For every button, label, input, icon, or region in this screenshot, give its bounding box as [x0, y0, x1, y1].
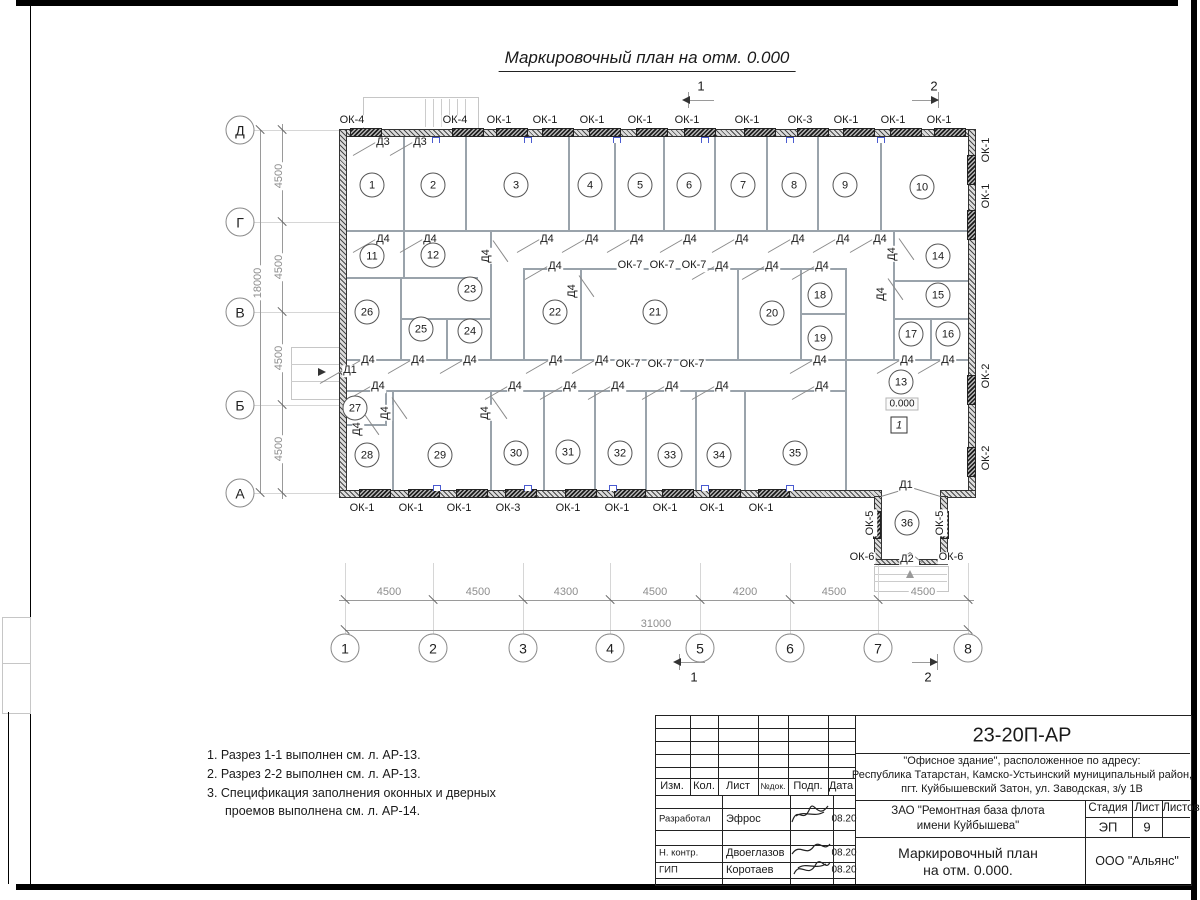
door-label: Д4 [462, 355, 478, 367]
window-label: ОК-7 [679, 359, 706, 371]
note-line: 3. Спецификация заполнения оконных и две… [207, 784, 529, 822]
room-number: 3 [504, 173, 529, 198]
partition-wall [845, 359, 847, 491]
window [351, 129, 381, 136]
room-number: 27 [343, 396, 368, 421]
room-number: 28 [355, 443, 380, 468]
role-label: Н. контр. [659, 848, 698, 859]
sheet-number: 9 [1143, 820, 1150, 835]
sheet-label: Лист [1135, 802, 1160, 814]
vent-mark [701, 137, 709, 143]
window [637, 129, 667, 136]
dimension-value: 4500 [273, 344, 285, 372]
partition-wall [880, 136, 882, 230]
partition-wall [845, 268, 847, 359]
room-number: 20 [760, 301, 785, 326]
door-label: Д4 [548, 355, 564, 367]
col-data: Дата [829, 780, 853, 792]
window-label: ОК-4 [339, 115, 366, 127]
partition-wall [465, 136, 467, 230]
room-number: 17 [899, 322, 924, 347]
door-label: Д4 [899, 355, 915, 367]
address-line: пгт. Куйбышевский Затон, ул. Заводская, … [901, 783, 1143, 795]
door-label: Д4 [562, 381, 578, 393]
dimension-value: 4500 [273, 162, 285, 190]
window-label: ОК-1 [833, 115, 860, 127]
floor-mark: 1 [891, 417, 908, 434]
partition-wall [737, 268, 739, 359]
partition-wall [744, 390, 746, 491]
partition-wall [663, 136, 665, 230]
drawing-sheet: Маркировочный план на отм. 0.000 ОК-4ОК-… [0, 0, 1200, 900]
door-label: Д4 [610, 381, 626, 393]
window-label: ОК-1 [926, 115, 953, 127]
level-mark: 0.000 [885, 398, 918, 411]
door-label: Д4 [507, 381, 523, 393]
room-number: 23 [458, 277, 483, 302]
window-label: ОК-7 [615, 359, 642, 371]
window-label: ОК-7 [617, 260, 644, 272]
room-number: 6 [677, 173, 702, 198]
window [685, 129, 715, 136]
porch-step [874, 581, 947, 582]
section-mark: 1 [696, 79, 705, 94]
vent-mark [432, 137, 440, 143]
room-number: 13 [889, 370, 914, 395]
partition-wall [403, 136, 405, 230]
door-swing [492, 397, 508, 419]
door-label: Д4 [539, 234, 555, 246]
room-number: 10 [910, 175, 935, 200]
window-label: ОК-1 [652, 503, 679, 515]
partition-wall [446, 318, 448, 360]
window-label: ОК-5 [865, 510, 877, 537]
porch-step [425, 99, 426, 127]
dimension-value: 4500 [273, 253, 285, 281]
door-label: Д4 [352, 421, 364, 437]
room-number: 34 [707, 443, 732, 468]
door-label: Д4 [567, 283, 579, 299]
window [710, 490, 740, 497]
room-number: 21 [643, 300, 668, 325]
axis-bubble: 7 [864, 634, 893, 663]
room-number: 26 [355, 300, 380, 325]
axis-bubble: Б [226, 391, 255, 420]
door-swing [911, 487, 941, 497]
section-arrow-line [679, 662, 705, 663]
vent-mark [524, 485, 532, 491]
door-label: Д4 [360, 355, 376, 367]
window [798, 129, 828, 136]
extension-line [252, 130, 344, 131]
axis-bubble: Д [226, 116, 255, 145]
room-number: 35 [783, 441, 808, 466]
window-label: ОК-1 [880, 115, 907, 127]
signature [788, 800, 832, 828]
company-name: ООО "Альянс" [1095, 854, 1179, 868]
door-label: Д4 [410, 355, 426, 367]
exterior-wall [969, 130, 975, 497]
room-number: 8 [782, 173, 807, 198]
vent-mark [786, 137, 794, 143]
dimension-total: 31000 [639, 618, 674, 630]
sheet-title-line: на отм. 0.000. [923, 862, 1013, 878]
role-label: ГИП [659, 865, 678, 876]
partition-wall [893, 280, 969, 282]
room-number: 4 [578, 173, 603, 198]
porch-arrow [906, 570, 914, 578]
axis-bubble: А [226, 479, 255, 508]
partition-wall [392, 390, 394, 491]
door-swing [899, 238, 915, 260]
window-label: ОК-7 [649, 260, 676, 272]
door-label: Д4 [814, 381, 830, 393]
door-label: Д4 [682, 234, 698, 246]
window [457, 490, 487, 497]
room-number: 19 [808, 326, 833, 351]
axis-bubble: В [226, 298, 255, 327]
door-label: Д4 [714, 261, 730, 273]
door-label: Д2 [899, 554, 915, 566]
partition-wall [580, 268, 582, 359]
window [543, 129, 573, 136]
dimension-value: 4500 [464, 586, 492, 598]
section-arrow-head [673, 658, 681, 666]
window-label: ОК-1 [349, 503, 376, 515]
dimension-value: 4500 [909, 586, 937, 598]
window [453, 129, 483, 136]
axis-bubble: 4 [596, 634, 625, 663]
room-number: 22 [543, 300, 568, 325]
notes-block: 1. Разрез 1-1 выполнен см. л. АР-13. 2. … [207, 746, 529, 821]
window-label: ОК-4 [442, 115, 469, 127]
date-value: 08.20 [831, 814, 856, 825]
date-value: 08.20 [831, 848, 856, 859]
axis-bubble: 8 [954, 634, 983, 663]
room-number: 25 [409, 317, 434, 342]
partition-wall [346, 277, 478, 279]
window [968, 376, 975, 404]
dimension-total: 18000 [252, 266, 264, 301]
extension-line [252, 405, 344, 406]
dimension-value: 4300 [552, 586, 580, 598]
col-list: Лист [726, 780, 750, 792]
door-label: Д4 [764, 261, 780, 273]
partition-wall [714, 136, 716, 230]
window [968, 448, 975, 476]
window [759, 490, 789, 497]
porch-step [291, 381, 340, 382]
dimension-value: 4500 [375, 586, 403, 598]
door-label: Д4 [790, 234, 806, 246]
porch-step [291, 364, 340, 365]
room-number: 2 [421, 173, 446, 198]
window-label: ОК-1 [555, 503, 582, 515]
stage-value: ЭП [1099, 820, 1118, 835]
door-label: Д4 [629, 234, 645, 246]
window [844, 129, 874, 136]
window-label: ОК-3 [495, 503, 522, 515]
door-label: Д4 [594, 355, 610, 367]
partition-wall [817, 136, 819, 230]
window [566, 490, 596, 497]
extension-line [252, 222, 344, 223]
window-label: ОК-1 [981, 137, 993, 164]
room-number: 36 [895, 511, 920, 536]
window-label: ОК-7 [681, 260, 708, 272]
door-label: Д4 [887, 246, 899, 262]
extension-line [252, 312, 344, 313]
window-label: ОК-2 [981, 363, 993, 390]
room-number: 30 [504, 441, 529, 466]
dimension-value: 4500 [273, 435, 285, 463]
room-number: 29 [428, 443, 453, 468]
window-label: ОК-5 [935, 510, 947, 537]
door-label: Д4 [480, 405, 492, 421]
door-label: Д4 [547, 261, 563, 273]
window-label: ОК-1 [398, 503, 425, 515]
col-izm: Изм. [660, 780, 684, 792]
partition-wall [594, 390, 596, 491]
door-label: Д3 [375, 137, 391, 149]
signature [788, 840, 832, 882]
window-label: ОК-6 [938, 552, 965, 564]
door-label: Д3 [412, 137, 428, 149]
axis-bubble: 2 [419, 634, 448, 663]
window-label: ОК-7 [647, 359, 674, 371]
window [745, 129, 775, 136]
window-label: ОК-1 [748, 503, 775, 515]
room-number: 14 [926, 244, 951, 269]
person-name: Коротаев [726, 864, 774, 876]
axis-bubble: 5 [686, 634, 715, 663]
window [590, 129, 620, 136]
window-label: ОК-1 [734, 115, 761, 127]
note-line: 1. Разрез 1-1 выполнен см. л. АР-13. [207, 746, 529, 765]
vent-mark [701, 485, 709, 491]
vent-mark [786, 485, 794, 491]
window-label: ОК-1 [627, 115, 654, 127]
section-arrow-head [930, 658, 938, 666]
partition-wall [766, 136, 768, 230]
window-label: ОК-2 [981, 445, 993, 472]
room-number: 9 [833, 173, 858, 198]
door-label: Д1 [898, 480, 914, 492]
address-line: "Офисное здание", расположенное по адрес… [903, 755, 1140, 767]
partition-wall [645, 390, 647, 491]
room-number: 5 [628, 173, 653, 198]
partition-wall [523, 268, 525, 359]
room-number: 11 [360, 244, 385, 269]
partition-wall [695, 390, 697, 491]
door-swing [493, 240, 509, 262]
section-mark: 2 [923, 670, 932, 685]
door-label: Д4 [584, 234, 600, 246]
stage-label: Стадия [1088, 802, 1127, 814]
section-arrow-head [682, 96, 690, 104]
porch-step [433, 99, 434, 127]
window-label: ОК-6 [849, 552, 876, 564]
window [615, 490, 645, 497]
window [663, 490, 693, 497]
dimension-value: 4200 [731, 586, 759, 598]
door-label: Д4 [876, 286, 888, 302]
dimension-value: 4500 [641, 586, 669, 598]
window-label: ОК-1 [579, 115, 606, 127]
col-ndok: №док. [761, 781, 786, 791]
window-label: ОК-1 [532, 115, 559, 127]
window [891, 129, 921, 136]
extension-line [252, 493, 344, 494]
sheet-title-line: Маркировочный план [898, 845, 1038, 861]
door-label: Д4 [481, 248, 493, 264]
partition-wall [403, 230, 405, 277]
door-label: Д4 [814, 261, 830, 273]
partition-wall [568, 136, 570, 230]
window [506, 490, 536, 497]
room-number: 7 [731, 173, 756, 198]
window-label: ОК-3 [787, 115, 814, 127]
room-number: 12 [421, 243, 446, 268]
window [968, 211, 975, 239]
door-label: Д4 [940, 355, 956, 367]
room-number: 15 [926, 283, 951, 308]
window [968, 156, 975, 184]
sheets-label: Листов [1162, 802, 1199, 814]
address-line: Республика Татарстан, Камско-Устьинский … [852, 769, 1192, 781]
door-label: Д4 [714, 381, 730, 393]
window-label: ОК-1 [981, 183, 993, 210]
door-label: Д4 [664, 381, 680, 393]
door-label: Д4 [734, 234, 750, 246]
doc-code: 23-20П-АР [973, 725, 1072, 748]
vent-mark [613, 137, 621, 143]
axis-bubble: 1 [331, 634, 360, 663]
client-line: ЗАО "Ремонтная база флота [891, 805, 1044, 817]
section-mark: 1 [689, 670, 698, 685]
col-podp: Подп. [793, 780, 822, 792]
door-label: Д4 [872, 234, 888, 246]
person-name: Двоеглазов [726, 847, 784, 859]
vent-mark [524, 137, 532, 143]
room-number: 1 [360, 173, 385, 198]
door-label: Д1 [342, 365, 358, 377]
section-arrow-head [931, 96, 939, 104]
porch-arrow [318, 368, 326, 376]
window [935, 129, 965, 136]
dim-line [260, 130, 261, 493]
partition-wall [346, 230, 969, 232]
partition-wall [800, 313, 845, 315]
room-number: 33 [658, 443, 683, 468]
room-number: 32 [608, 441, 633, 466]
date-value: 08.20 [831, 865, 856, 876]
axis-bubble: 6 [776, 634, 805, 663]
window-label: ОК-1 [674, 115, 701, 127]
vent-mark [433, 485, 441, 491]
door-label: Д4 [380, 405, 392, 421]
window-label: ОК-1 [446, 503, 473, 515]
section-arrow-line [688, 100, 714, 101]
window-label: ОК-1 [486, 115, 513, 127]
room-number: 16 [936, 322, 961, 347]
partition-wall [543, 390, 545, 491]
door-label: Д4 [370, 381, 386, 393]
person-name: Эфрос [726, 813, 761, 825]
window-label: ОК-1 [699, 503, 726, 515]
col-kol: Кол. [693, 780, 715, 792]
window-label: ОК-1 [604, 503, 631, 515]
axis-bubble: 3 [509, 634, 538, 663]
window [360, 490, 390, 497]
role-label: Разработал [659, 814, 711, 825]
door-label: Д4 [812, 355, 828, 367]
note-line: 2. Разрез 2-2 выполнен см. л. АР-13. [207, 765, 529, 784]
window [497, 129, 527, 136]
dimension-value: 4500 [820, 586, 848, 598]
door-label: Д4 [835, 234, 851, 246]
axis-bubble: Г [226, 208, 255, 237]
exterior-wall [340, 130, 346, 497]
dim-line [345, 630, 968, 631]
partition-wall [614, 136, 616, 230]
vent-mark [877, 137, 885, 143]
room-number: 18 [808, 283, 833, 308]
room-number: 24 [458, 319, 483, 344]
vent-mark [609, 485, 617, 491]
partition-wall [930, 318, 932, 360]
window [409, 490, 439, 497]
room-number: 31 [556, 440, 581, 465]
client-line: имени Куйбышева" [917, 820, 1020, 832]
